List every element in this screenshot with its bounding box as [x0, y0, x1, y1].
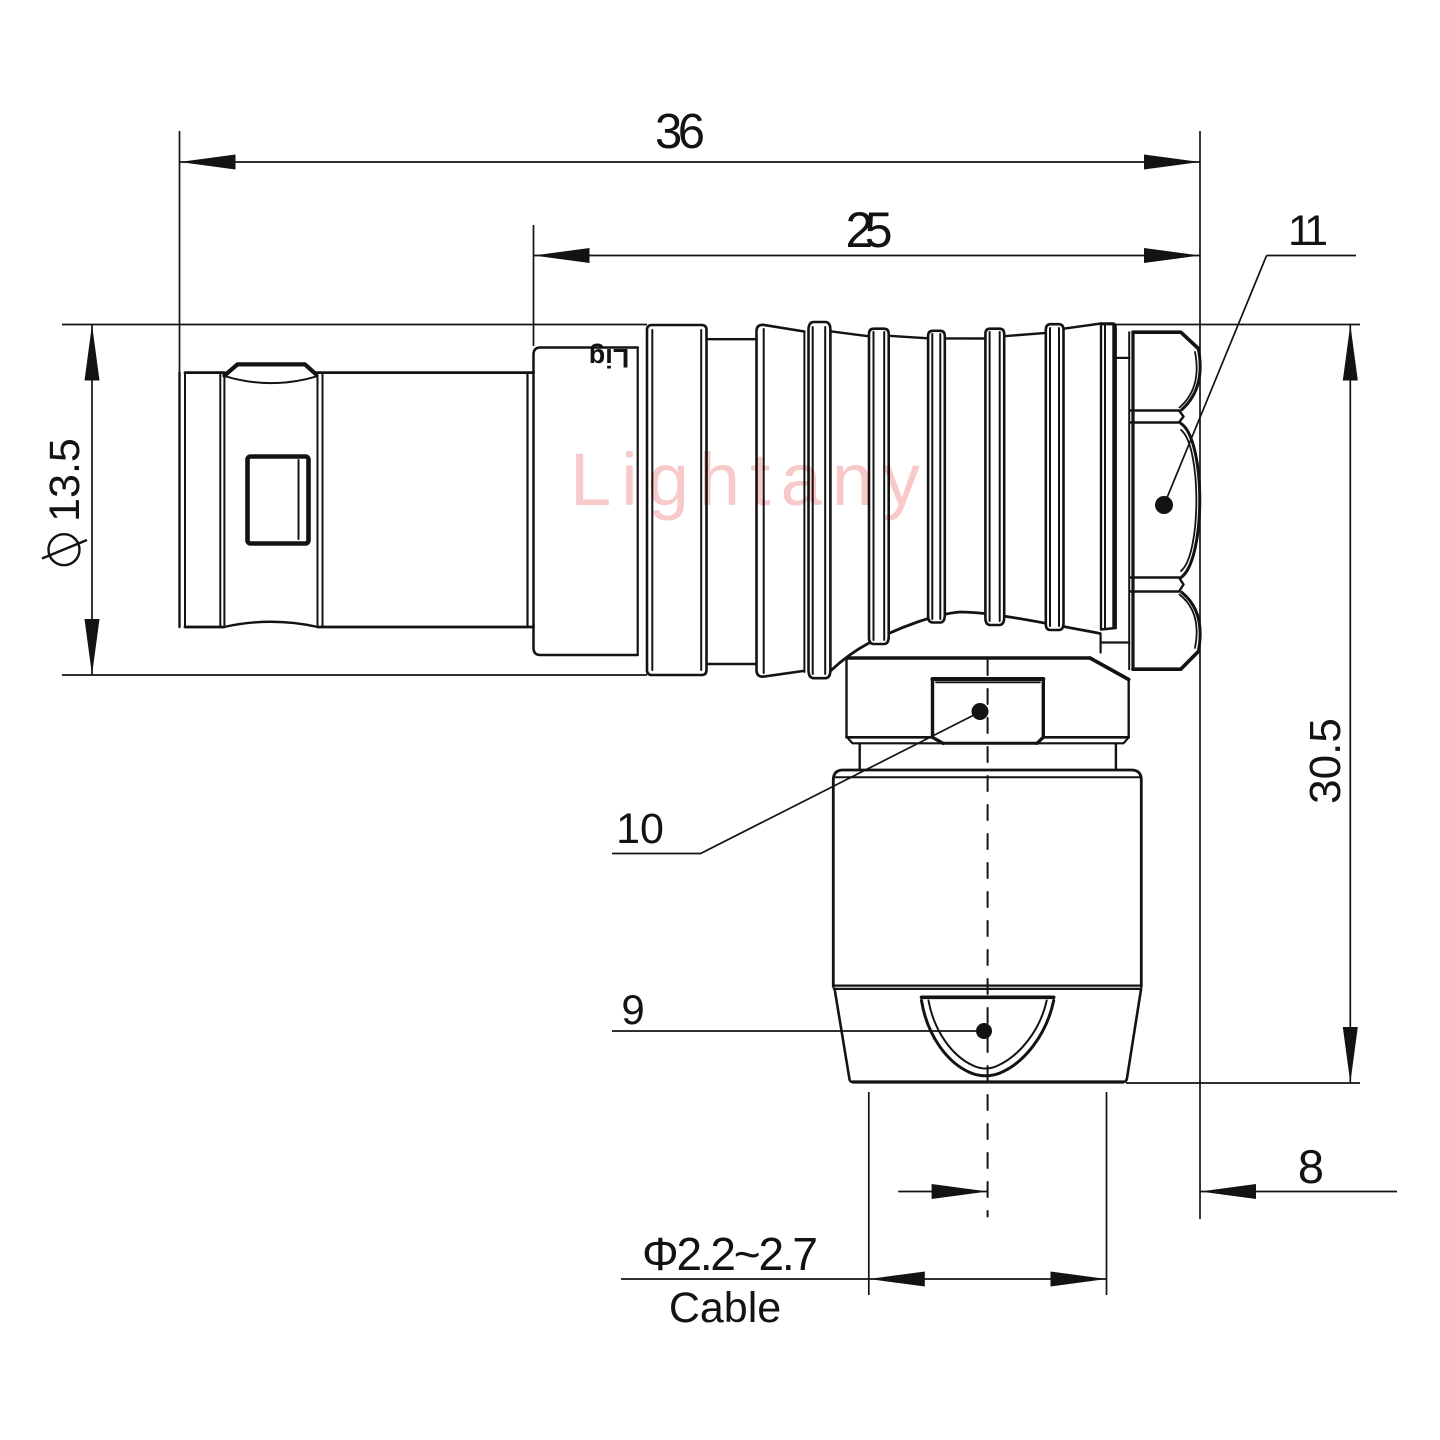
svg-text:11: 11 — [1288, 207, 1328, 255]
svg-text:13.5: 13.5 — [41, 438, 89, 522]
svg-text:Φ2.2~2.7: Φ2.2~2.7 — [642, 1228, 818, 1280]
svg-text:8: 8 — [1298, 1140, 1324, 1193]
svg-text:30.5: 30.5 — [1301, 718, 1350, 804]
svg-text:36: 36 — [655, 105, 705, 159]
svg-text:Cable: Cable — [669, 1284, 781, 1332]
svg-text:Lig: Lig — [589, 343, 630, 373]
svg-text:10: 10 — [616, 805, 664, 853]
svg-text:Lightany: Lightany — [570, 438, 930, 521]
svg-text:9: 9 — [621, 986, 644, 1033]
svg-text:25: 25 — [846, 202, 893, 258]
